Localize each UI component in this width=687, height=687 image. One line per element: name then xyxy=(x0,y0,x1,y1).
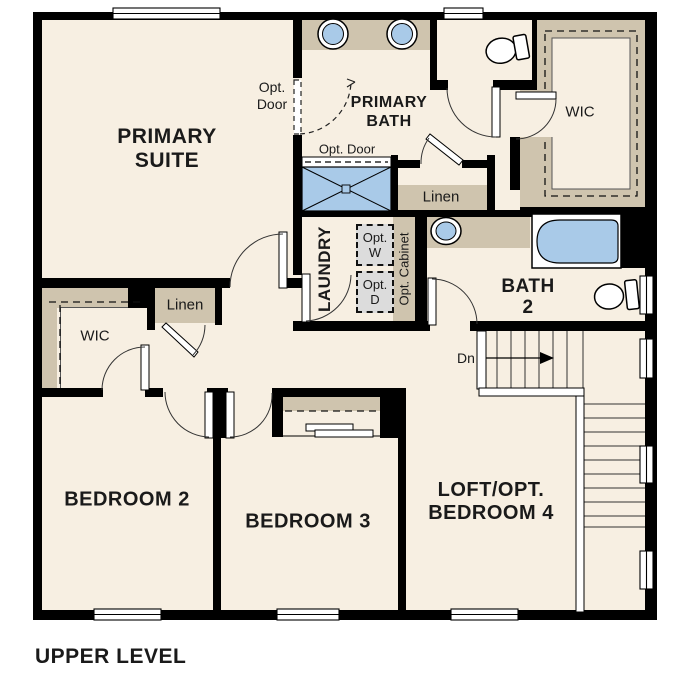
floor-plan: Opt. W Opt. D xyxy=(0,0,687,687)
room-label-loft: LOFT/OPT.BEDROOM 4 xyxy=(428,479,554,525)
room-label-primary-bath: PRIMARYBATH xyxy=(351,93,428,131)
toilet-icon xyxy=(484,34,530,66)
stairs xyxy=(477,331,645,612)
bathtub-icon xyxy=(532,214,621,268)
room-label-laundry: LAUNDRY xyxy=(315,226,335,312)
room-label-primary-suite: PRIMARYSUITE xyxy=(117,125,217,173)
room-label-bath-linen: Linen xyxy=(423,189,460,206)
room-label-bedroom3: BEDROOM 3 xyxy=(245,511,371,534)
bedroom3-closet-doors xyxy=(283,411,380,437)
annotation-stairs-down: Dn xyxy=(457,350,475,366)
annotation-opt-cabinet: Opt. Cabinet xyxy=(397,233,412,306)
optional-door-swing xyxy=(294,79,355,134)
page-title: UPPER LEVEL xyxy=(35,645,186,669)
shower xyxy=(302,157,391,211)
stairs-down-arrow xyxy=(486,352,554,364)
sink-icon xyxy=(431,218,461,245)
room-label-hall-linen: Linen xyxy=(167,297,204,314)
room-label-bath2: BATH2 xyxy=(501,276,554,318)
annotation-opt-door-entry: Opt.Door xyxy=(257,79,287,113)
room-label-primary-wic: WIC xyxy=(565,104,594,121)
room-label-bedroom2: BEDROOM 2 xyxy=(64,489,190,512)
toilet-icon xyxy=(593,280,639,313)
sink-icon xyxy=(318,19,417,49)
annotation-opt-door-shower: Opt. Door xyxy=(319,142,375,157)
room-label-bedroom2-wic: WIC xyxy=(80,328,109,345)
